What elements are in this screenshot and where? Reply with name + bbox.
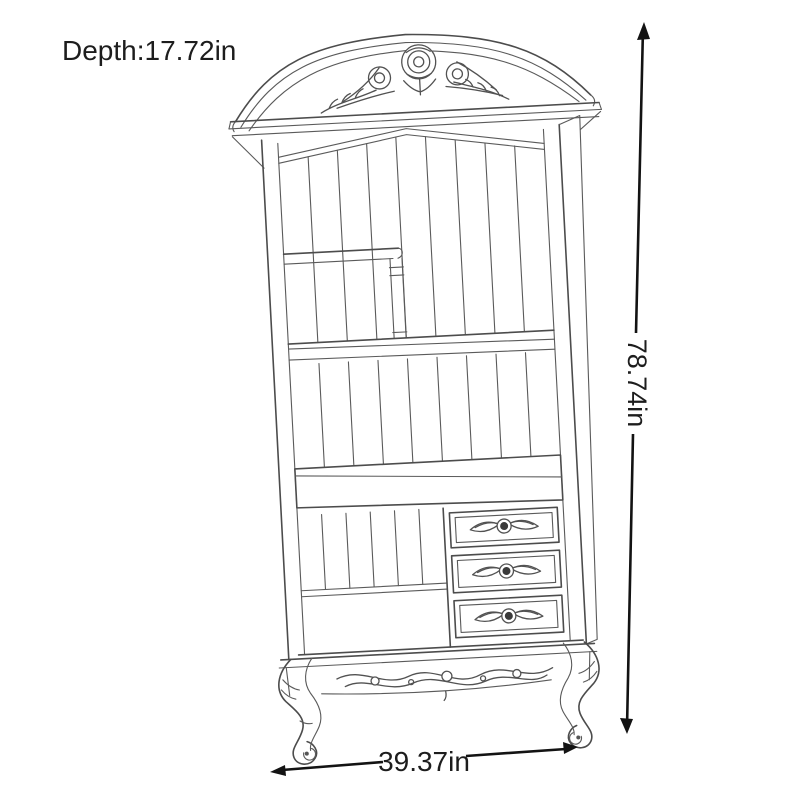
half-shelf-bottom xyxy=(284,258,393,264)
height-dimension-label: 78.74in xyxy=(622,339,652,428)
slat-line xyxy=(322,515,326,590)
left-leg-inner-line xyxy=(305,658,323,751)
right-knee-hatching xyxy=(578,661,597,682)
apron-bud xyxy=(480,676,485,681)
slat-line xyxy=(308,157,318,343)
back-slats-middle xyxy=(319,353,531,468)
slat-line xyxy=(394,511,398,586)
apron-carving xyxy=(337,664,554,706)
half-shelf-top xyxy=(284,248,399,254)
apron-rosette-center xyxy=(442,671,453,682)
apron-drop xyxy=(444,691,447,700)
front-left-leg xyxy=(278,658,324,765)
slat-line xyxy=(367,144,377,340)
depth-annotation: Depth:17.72in xyxy=(62,35,236,66)
drawer-3 xyxy=(454,595,564,638)
left-stile-outer xyxy=(262,140,289,659)
crown-end-scroll-right xyxy=(591,95,595,106)
leaf-sprig-left xyxy=(320,88,377,113)
slat-line xyxy=(425,137,435,337)
right-foot-scroll-eye xyxy=(576,735,580,739)
rose-carving-outer xyxy=(401,44,437,80)
bookcase-diagram-canvas: Depth:17.72in 78.74in 39.37in xyxy=(0,0,800,800)
right-leg-outline xyxy=(563,641,603,748)
middle-shelf-bottom xyxy=(289,346,555,363)
scroll-carving-right xyxy=(446,62,469,85)
apron-rosette xyxy=(371,677,379,685)
slat-line xyxy=(485,144,495,334)
drawer-1 xyxy=(449,507,559,548)
middle-shelf xyxy=(288,330,555,363)
arrow-left-icon xyxy=(270,765,286,776)
shelf-support-post xyxy=(389,258,407,339)
arrow-down-icon xyxy=(620,718,633,734)
right-leg-inner-line xyxy=(557,643,575,736)
left-stile-inner xyxy=(278,143,305,654)
interior-ceiling-arch xyxy=(277,121,544,163)
open-cubby xyxy=(297,508,450,654)
slat-line xyxy=(496,354,501,458)
plinth-bottom-edge xyxy=(322,680,552,698)
slat-line xyxy=(319,364,324,468)
slat-line xyxy=(466,356,471,460)
diagram-page: Depth:17.72in 78.74in 39.37in xyxy=(0,0,800,800)
slat-line xyxy=(348,362,353,466)
drawer-divider xyxy=(443,508,450,647)
lower-shelf xyxy=(295,455,563,514)
cornice-end-cap-right xyxy=(579,102,602,129)
left-foot-scroll-eye xyxy=(305,752,309,756)
front-right-leg xyxy=(557,641,603,748)
bookcase-drawing xyxy=(225,24,635,766)
depth-dimension-label: Depth:17.72in xyxy=(62,35,236,66)
lower-shelf-board xyxy=(295,455,563,514)
drawer-stack xyxy=(449,507,563,637)
crown-carving xyxy=(318,40,509,113)
crown-pediment xyxy=(228,25,595,132)
cabinet-bottom-rail xyxy=(299,640,584,655)
crown-end-scroll-left xyxy=(232,122,236,132)
slat-line xyxy=(515,146,525,332)
base-plinth xyxy=(279,639,599,709)
apron-rosette xyxy=(513,669,521,677)
base-molding-top xyxy=(281,643,595,659)
slat-line xyxy=(378,360,383,464)
back-slats-upper xyxy=(307,131,524,343)
slat-line xyxy=(346,513,350,588)
arrow-up-icon xyxy=(637,22,650,40)
middle-shelf-top xyxy=(288,330,554,344)
slat-line xyxy=(455,140,465,335)
slat-line xyxy=(407,359,412,463)
slat-line xyxy=(437,357,442,461)
slat-line xyxy=(370,512,374,587)
slat-line xyxy=(525,353,530,457)
width-annotation: 39.37in xyxy=(270,742,578,777)
leaf-drop-center xyxy=(404,78,437,96)
slat-line xyxy=(419,509,423,584)
left-leg-outline xyxy=(278,658,318,765)
drawer-2 xyxy=(452,550,562,593)
slat-line xyxy=(337,150,347,341)
width-dimension-label: 39.37in xyxy=(378,746,470,777)
height-annotation: 78.74in xyxy=(620,22,652,734)
plinth-sides xyxy=(286,652,591,696)
